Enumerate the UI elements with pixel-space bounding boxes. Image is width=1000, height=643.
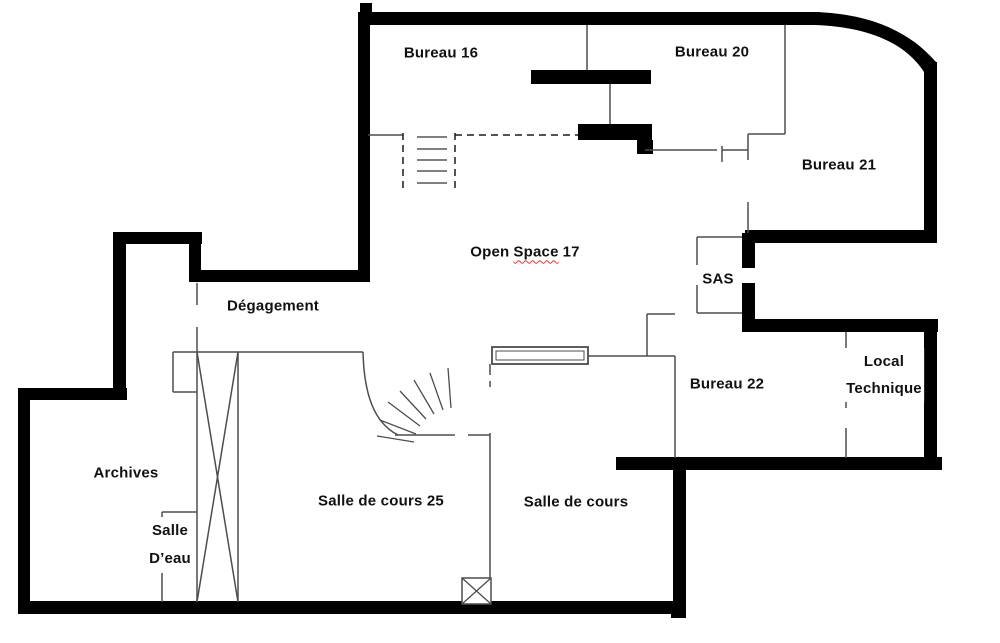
- wall-top: [358, 12, 820, 25]
- wall-bureau21-bottom: [745, 230, 937, 243]
- room-label-bureau-16: Bureau 16: [404, 45, 478, 62]
- room-label-bureau-21: Bureau 21: [802, 157, 876, 174]
- salle-deau-line-1: Salle: [149, 517, 191, 545]
- wall-top-notch: [360, 3, 372, 13]
- wall-left-lower: [18, 388, 30, 614]
- wall-right-lower: [924, 319, 937, 469]
- wall-bureau16-20-bar2-step: [637, 140, 653, 154]
- wall-right-upper: [924, 62, 937, 235]
- room-label-degagement: Dégagement: [227, 298, 319, 315]
- room-label-salle-de-cours-25: Salle de cours 25: [318, 493, 444, 510]
- stairs-symbol: [403, 133, 578, 188]
- room-label-salle-deau: SalleD’eau: [147, 517, 193, 573]
- wall-localtech-top: [742, 319, 938, 332]
- wall-top-step-h: [113, 232, 202, 244]
- open-space-word-1: Open: [470, 244, 509, 261]
- room-label-open-space: OpenSpace17: [470, 244, 579, 261]
- wall-bureau16-20-bar2: [578, 124, 652, 140]
- open-space-word-3: 17: [563, 244, 580, 261]
- column-symbol: [462, 578, 491, 604]
- wall-left-mid: [113, 232, 126, 400]
- wall-bureau16-20-bar1: [531, 70, 651, 84]
- window-bay-symbol: [492, 347, 588, 364]
- wall-sas-right-a: [742, 233, 755, 268]
- room-label-bureau-20: Bureau 20: [675, 44, 749, 61]
- room-label-bureau-22: Bureau 22: [690, 376, 764, 393]
- door-swing-symbol: [363, 352, 451, 442]
- wall-bottom: [18, 601, 686, 614]
- wall-bureau22-bottom: [616, 457, 942, 470]
- room-label-sas: SAS: [702, 271, 733, 288]
- wall-left-step-h: [18, 388, 127, 400]
- wall-degagement-top: [189, 270, 370, 282]
- local-technique-line-1: Local: [846, 348, 922, 375]
- wall-bottom-step: [671, 613, 686, 618]
- open-space-word-2-misspelled: Space: [513, 244, 558, 261]
- room-label-local-technique: LocalTechnique: [844, 348, 924, 402]
- room-label-salle-de-cours: Salle de cours: [524, 494, 629, 511]
- local-technique-line-2: Technique: [846, 375, 922, 402]
- salle-deau-line-2: D’eau: [149, 545, 191, 573]
- room-label-archives: Archives: [94, 465, 159, 482]
- wall-bureau16-left: [358, 12, 370, 282]
- wall-salle-right: [673, 457, 686, 613]
- floor-plan: Bureau 16 Bureau 20 Bureau 21 OpenSpace1…: [0, 0, 1000, 643]
- wall-top-right-curve: [815, 12, 936, 72]
